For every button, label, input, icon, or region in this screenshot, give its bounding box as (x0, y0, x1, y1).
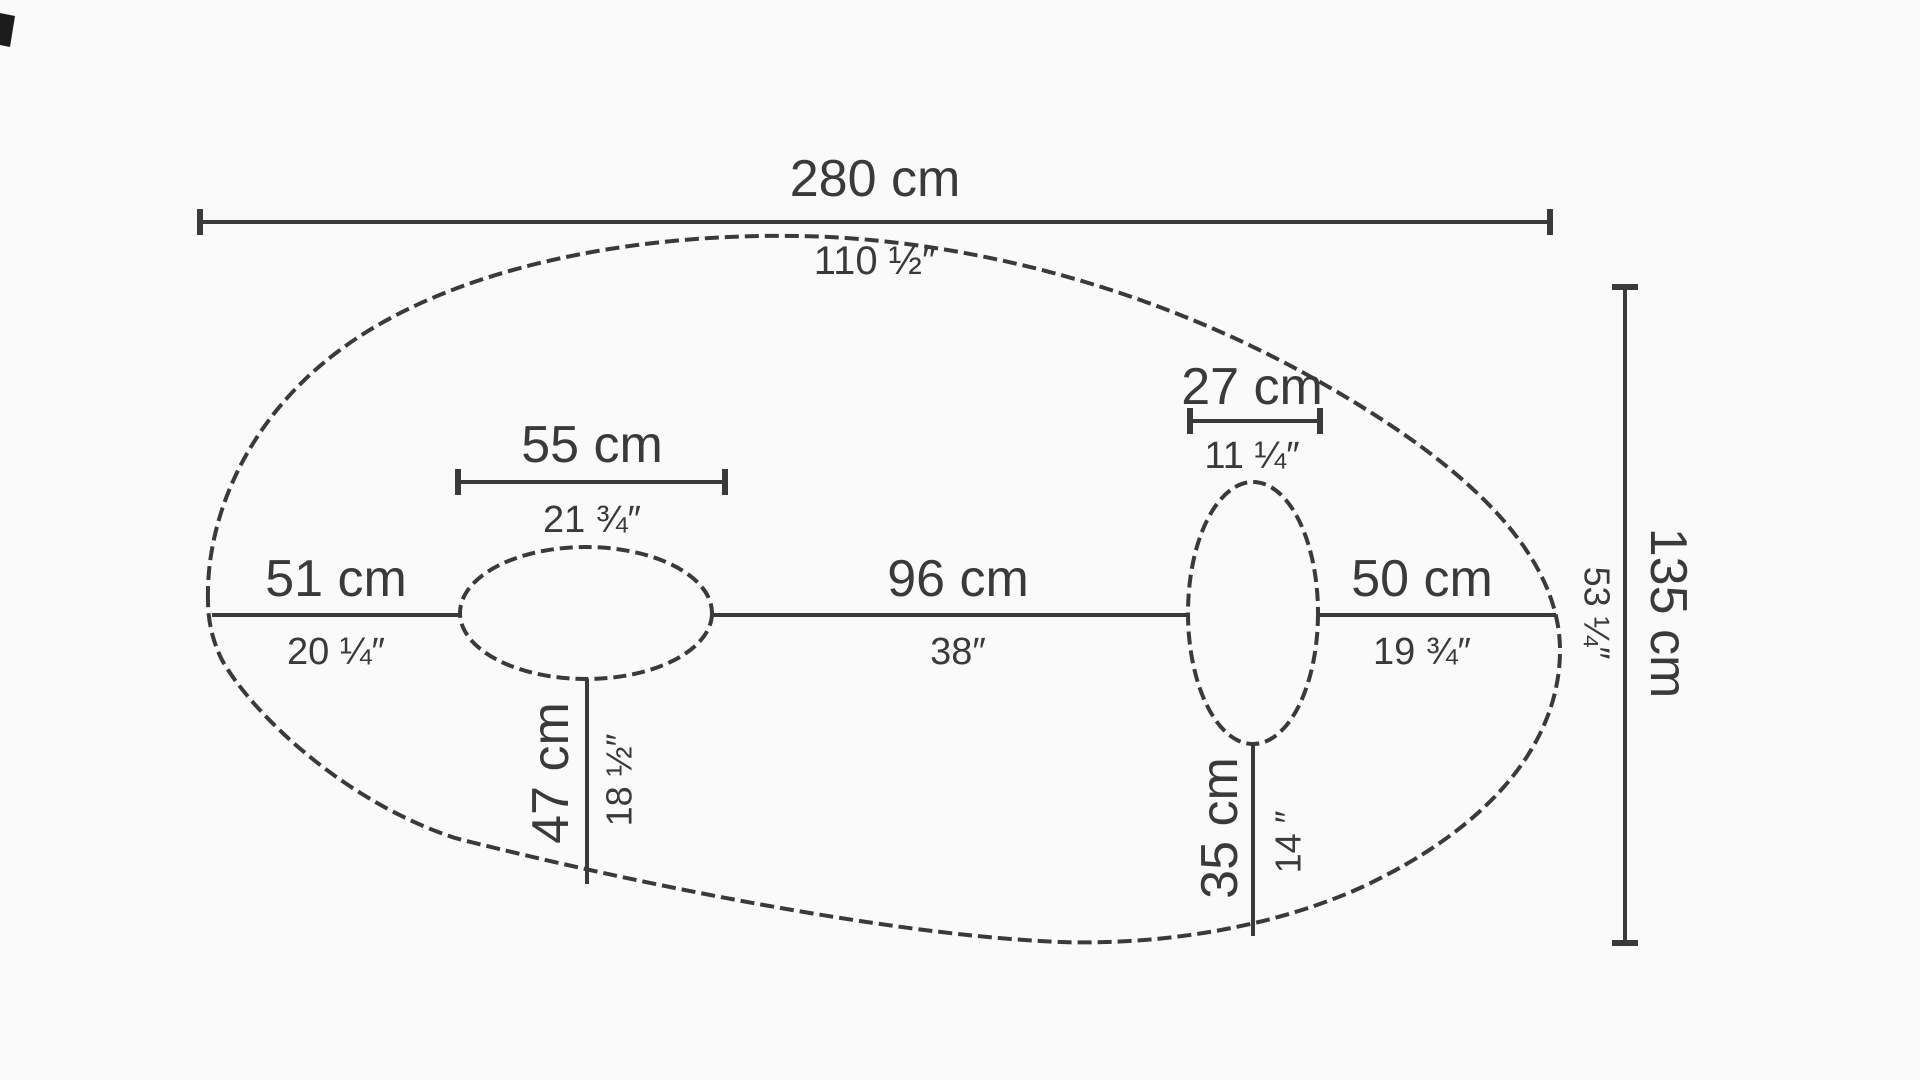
left-opening-depth-cm-label: 47 cm (522, 702, 580, 844)
right-opening-width-in-label: 11 ¼″ (1204, 435, 1299, 477)
left-segment-cm-label: 51 cm (265, 550, 407, 608)
overall-height-dimension: 135 cm 53 ¼″ (1577, 287, 1698, 943)
right-opening-width-dimension: 27 cm 11 ¼″ (1181, 358, 1323, 477)
page-corner-mark (0, 13, 15, 47)
middle-segment-in-label: 38″ (930, 631, 986, 673)
right-segment-in-label: 19 ¾″ (1373, 631, 1471, 673)
left-opening-depth-in-label: 18 ½″ (599, 733, 640, 826)
measurement-diagram-page: 280 cm 110 ½″ 135 cm 53 ¼″ 51 cm 20 ¼″ 5… (0, 0, 1920, 1080)
left-opening-depth-dimension: 47 cm 18 ½″ (522, 702, 640, 844)
left-segment-dimension: 51 cm 20 ¼″ (265, 550, 407, 673)
right-opening-depth-dimension: 35 cm 14 ″ (1191, 757, 1309, 899)
overall-width-cm-label: 280 cm (790, 150, 961, 208)
right-opening-width-cm-label: 27 cm (1181, 358, 1323, 416)
right-opening-depth-in-label: 14 ″ (1268, 810, 1309, 873)
middle-segment-cm-label: 96 cm (887, 550, 1029, 608)
left-opening-width-in-label: 21 ¾″ (543, 499, 641, 541)
left-opening-width-dimension: 55 cm 21 ¾″ (458, 416, 725, 541)
left-segment-in-label: 20 ¼″ (287, 631, 385, 673)
right-opening-depth-cm-label: 35 cm (1191, 757, 1249, 899)
overall-width-dimension: 280 cm 110 ½″ (200, 150, 1550, 283)
overall-height-in-label: 53 ¼″ (1577, 567, 1618, 660)
overall-width-in-label: 110 ½″ (814, 239, 936, 283)
middle-segment-dimension: 96 cm 38″ (887, 550, 1029, 673)
left-opening-width-cm-label: 55 cm (521, 416, 663, 474)
left-opening (460, 547, 712, 679)
measurement-diagram: 280 cm 110 ½″ 135 cm 53 ¼″ 51 cm 20 ¼″ 5… (0, 0, 1920, 1080)
right-segment-dimension: 50 cm 19 ¾″ (1351, 550, 1493, 673)
overall-height-cm-label: 135 cm (1639, 528, 1697, 699)
right-segment-cm-label: 50 cm (1351, 550, 1493, 608)
right-opening (1188, 482, 1318, 744)
